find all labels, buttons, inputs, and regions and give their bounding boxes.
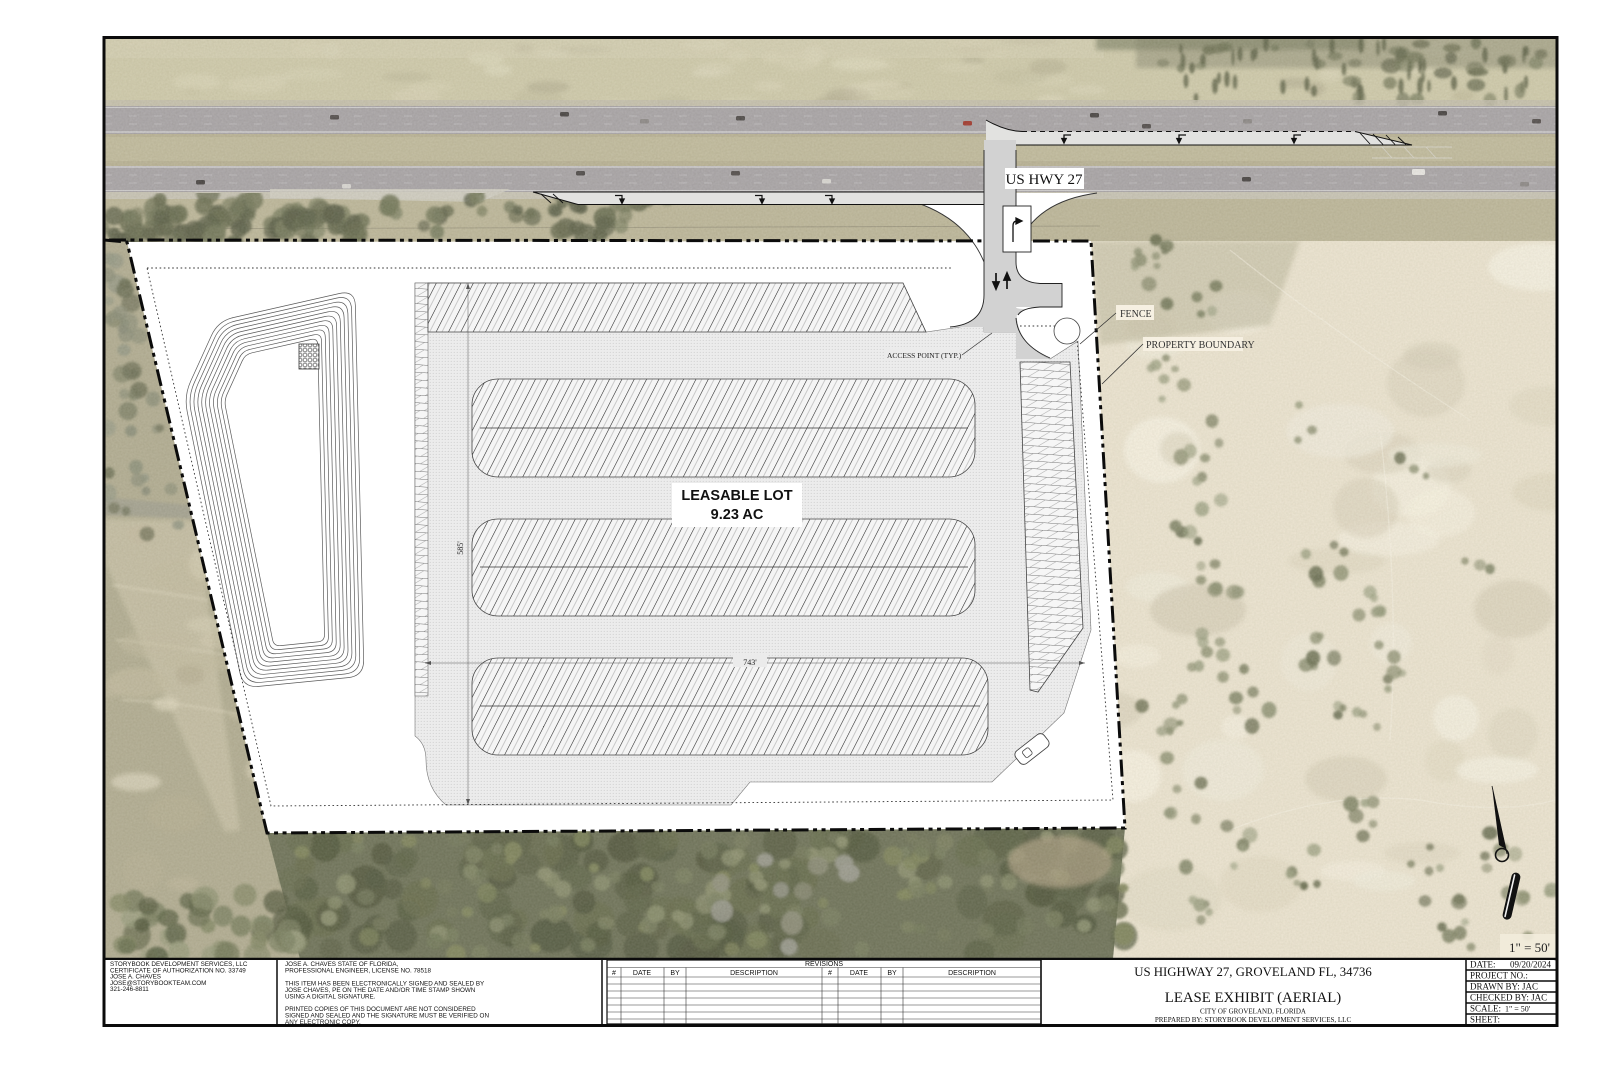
svg-text:US HWY 27: US HWY 27 <box>1006 172 1083 188</box>
svg-text:FENCE: FENCE <box>1120 309 1152 320</box>
svg-text:1" = 50': 1" = 50' <box>1505 1005 1531 1014</box>
svg-text:CITY OF GROVELAND, FLORIDA: CITY OF GROVELAND, FLORIDA <box>1200 1008 1306 1016</box>
svg-text:DATE:: DATE: <box>1470 960 1496 970</box>
svg-text:DESCRIPTION: DESCRIPTION <box>730 970 778 977</box>
svg-text:1" = 50': 1" = 50' <box>1509 940 1550 955</box>
svg-text:DATE: DATE <box>850 970 868 977</box>
svg-text:BY: BY <box>887 970 897 977</box>
svg-text:ANY ELECTRONIC COPY.: ANY ELECTRONIC COPY. <box>285 1019 361 1026</box>
svg-text:REVISIONS: REVISIONS <box>805 961 843 968</box>
svg-text:585': 585' <box>456 541 465 555</box>
svg-text:321-246-8811: 321-246-8811 <box>110 986 149 993</box>
svg-text:SHEET:: SHEET: <box>1470 1015 1500 1025</box>
svg-text:US HIGHWAY 27, GROVELAND FL, 3: US HIGHWAY 27, GROVELAND FL, 34736 <box>1134 965 1372 979</box>
svg-text:BY: BY <box>670 970 680 977</box>
svg-text:PROFESSIONAL ENGINEER, LICENSE: PROFESSIONAL ENGINEER, LICENSE NO. 78518 <box>285 968 432 975</box>
svg-text:CHECKED BY: JAC: CHECKED BY: JAC <box>1470 993 1547 1003</box>
svg-text:ACCESS POINT (TYP.): ACCESS POINT (TYP.) <box>887 351 962 360</box>
svg-text:09/20/2024: 09/20/2024 <box>1510 960 1552 970</box>
svg-text:PROPERTY BOUNDARY: PROPERTY BOUNDARY <box>1146 340 1255 351</box>
svg-text:743': 743' <box>743 658 757 667</box>
svg-text:PROJECT NO.:: PROJECT NO.: <box>1470 971 1528 981</box>
svg-text:SCALE:: SCALE: <box>1470 1004 1501 1014</box>
svg-text:DATE: DATE <box>633 970 651 977</box>
svg-text:LEASE EXHIBIT (AERIAL): LEASE EXHIBIT (AERIAL) <box>1165 990 1342 1006</box>
svg-text:#: # <box>612 970 616 977</box>
svg-text:DRAWN BY:: DRAWN BY: <box>1470 982 1520 992</box>
svg-text:PREPARED BY: STORYBOOK DEVELOP: PREPARED BY: STORYBOOK DEVELOPMENT SERVI… <box>1155 1016 1352 1024</box>
svg-text:9.23 AC: 9.23 AC <box>711 507 764 523</box>
svg-text:#: # <box>828 970 832 977</box>
svg-text:JAC: JAC <box>1522 982 1538 992</box>
svg-text:DESCRIPTION: DESCRIPTION <box>948 970 996 977</box>
svg-text:USING A DIGITAL SIGNATURE.: USING A DIGITAL SIGNATURE. <box>285 994 376 1001</box>
svg-text:LEASABLE LOT: LEASABLE LOT <box>681 488 792 504</box>
